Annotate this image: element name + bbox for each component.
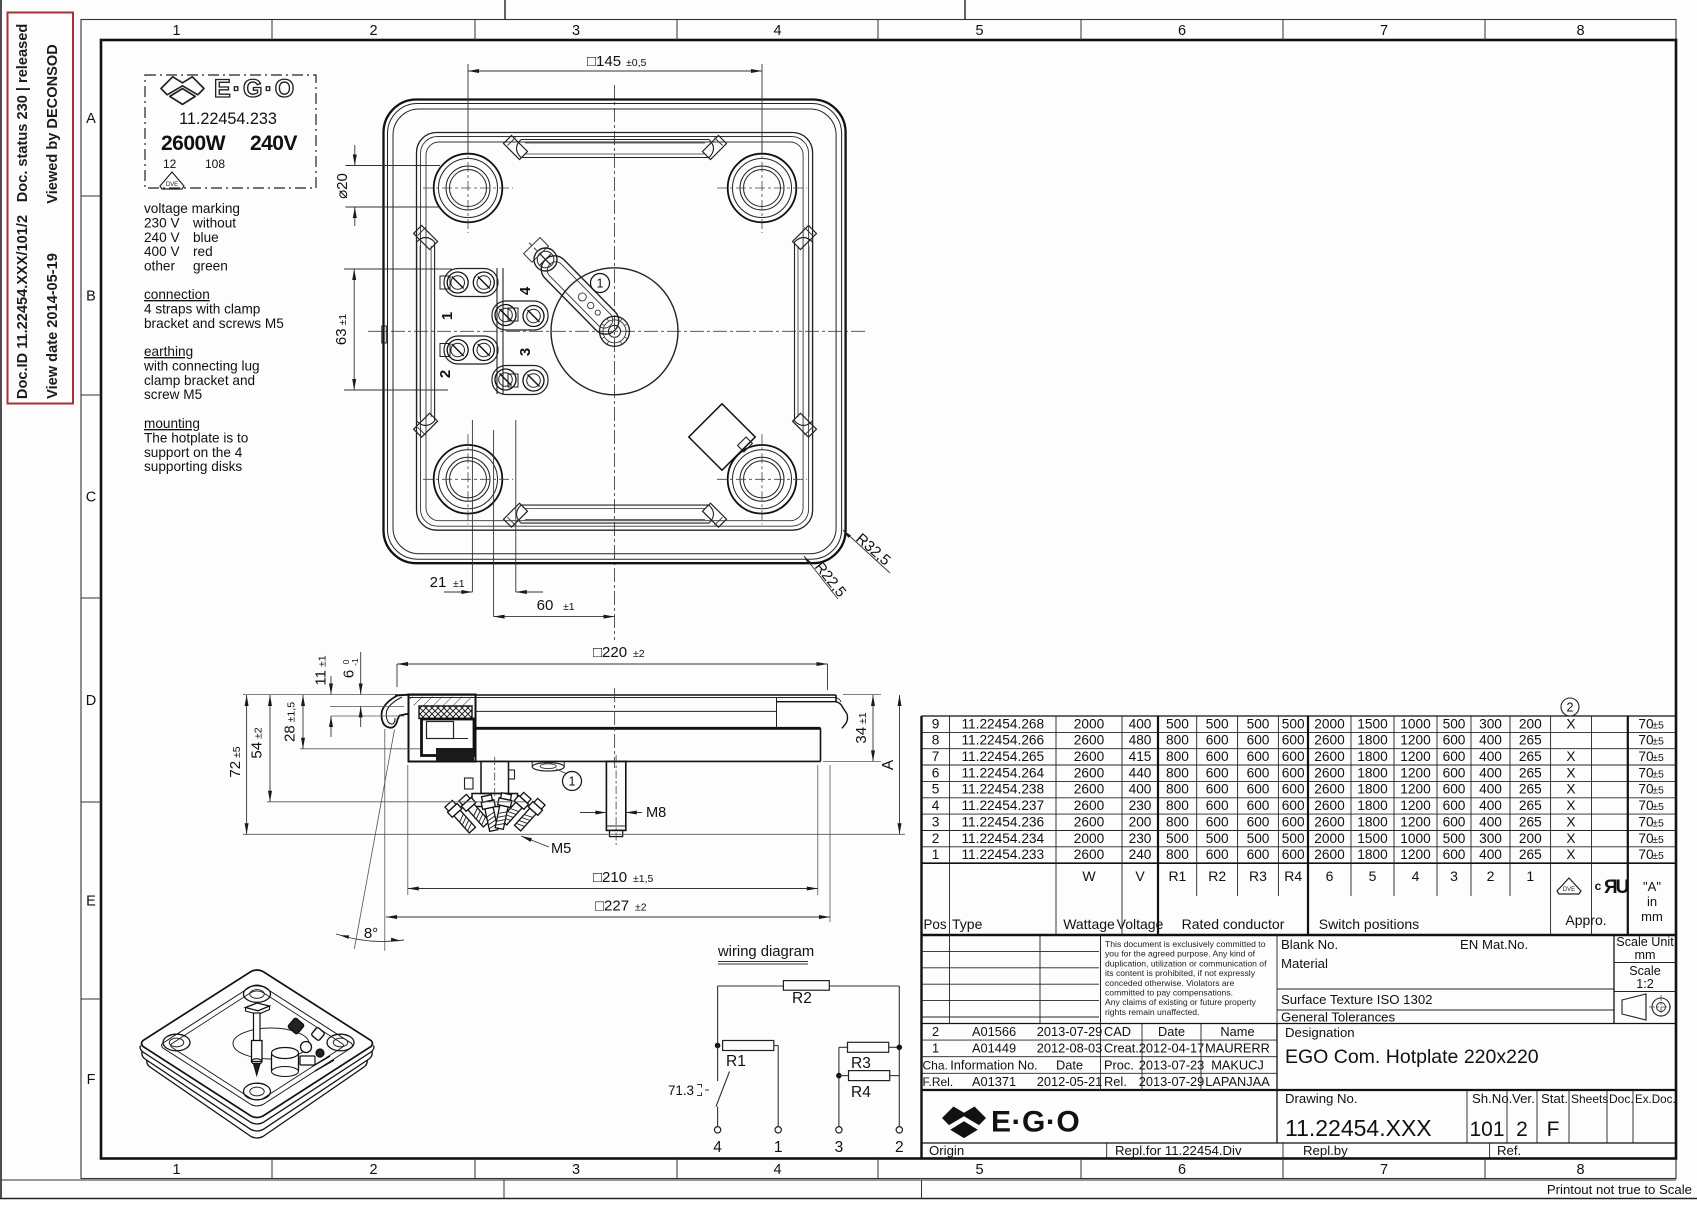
svg-text:600: 600 [1247,782,1270,797]
svg-text:11.22454.238: 11.22454.238 [961,782,1044,797]
svg-text:480: 480 [1129,733,1152,748]
svg-text:200: 200 [1519,716,1542,731]
svg-text:2600: 2600 [1314,798,1345,813]
svg-text:2: 2 [932,1024,939,1039]
svg-text:800: 800 [1166,847,1189,862]
svg-text:230: 230 [1129,798,1152,813]
svg-text:265: 265 [1519,749,1542,764]
svg-text:500: 500 [1166,831,1189,846]
svg-text:2000: 2000 [1314,831,1345,846]
svg-text:"A": "A" [1643,879,1661,894]
svg-text:±1: ±1 [563,601,575,613]
svg-text:□227: □227 [595,898,629,915]
svg-text:2600: 2600 [1314,814,1345,829]
svg-text:clamp bracket and: clamp bracket and [144,373,255,388]
svg-text:600: 600 [1282,814,1305,829]
svg-text:±5: ±5 [1652,736,1664,748]
svg-text:you for the agreed purpose. An: you for the agreed purpose. Any kind of [1105,949,1256,959]
svg-text:R3: R3 [851,1055,871,1072]
svg-text:D: D [86,693,96,709]
svg-text:600: 600 [1282,733,1305,748]
svg-text:General Tolerances: General Tolerances [1281,1010,1396,1025]
svg-text:Doc. status 230 | released: Doc. status 230 | released [15,24,31,203]
svg-text:3: 3 [572,1162,580,1178]
svg-text:rights remain unaffected.: rights remain unaffected. [1105,1007,1199,1017]
svg-text:600: 600 [1282,798,1305,813]
svg-text:21: 21 [430,574,447,591]
svg-text:2600: 2600 [1074,782,1105,797]
svg-text:1200: 1200 [1400,749,1431,764]
svg-text:600: 600 [1282,847,1305,862]
svg-text:5: 5 [932,782,940,797]
svg-text:Sheets: Sheets [1571,1092,1608,1106]
svg-text:600: 600 [1282,782,1305,797]
svg-text:1: 1 [172,23,180,39]
svg-text:6: 6 [1178,1162,1186,1178]
svg-text:4: 4 [773,1162,781,1178]
svg-text:Name: Name [1220,1024,1254,1039]
svg-text:1800: 1800 [1357,765,1388,780]
svg-text:1500: 1500 [1357,831,1388,846]
svg-text:c: c [1595,879,1602,893]
svg-text:600: 600 [1443,847,1466,862]
svg-text:5: 5 [975,1162,983,1178]
svg-text:1: 1 [1526,868,1534,884]
svg-text:800: 800 [1166,749,1189,764]
svg-text:11.22454.264: 11.22454.264 [961,765,1044,780]
svg-text:1: 1 [439,312,456,320]
svg-text:2600: 2600 [1314,847,1345,862]
svg-text:4: 4 [713,1139,722,1156]
svg-text:other: other [144,259,175,274]
svg-text:11.22454.237: 11.22454.237 [961,798,1044,813]
svg-text:600: 600 [1282,765,1305,780]
svg-text:8: 8 [1576,23,1584,39]
svg-text:265: 265 [1519,798,1542,813]
svg-text:supporting disks: supporting disks [144,459,242,474]
svg-text:2013-07-29: 2013-07-29 [1037,1024,1102,1039]
svg-text:600: 600 [1206,749,1229,764]
svg-text:2600: 2600 [1314,733,1345,748]
svg-text:1: 1 [774,1139,783,1156]
svg-text:Sh.No.: Sh.No. [1472,1091,1512,1106]
svg-text:2: 2 [1516,1118,1528,1141]
svg-text:LAPANJAA: LAPANJAA [1205,1074,1270,1089]
svg-text:duplication, utilization or co: duplication, utilization or communicatio… [1105,958,1267,968]
svg-text:4: 4 [932,798,940,813]
svg-text:240V: 240V [250,132,298,155]
svg-text:500: 500 [1166,716,1189,731]
svg-text:8°: 8° [364,925,378,942]
svg-text:11.22454.233: 11.22454.233 [179,110,277,128]
svg-text:X: X [1566,765,1575,780]
svg-text:connection: connection [144,287,210,302]
svg-text:240 V: 240 V [144,230,180,245]
svg-text:red: red [193,244,213,259]
svg-text:R4: R4 [851,1084,871,1101]
svg-text:600: 600 [1206,798,1229,813]
svg-text:265: 265 [1519,765,1542,780]
svg-text:A01566: A01566 [972,1024,1016,1039]
svg-text:X: X [1566,749,1575,764]
svg-text:2600: 2600 [1074,749,1105,764]
svg-text:Rated conductor: Rated conductor [1182,916,1285,932]
svg-text:2013-07-23: 2013-07-23 [1139,1057,1204,1072]
svg-text:230: 230 [1129,831,1152,846]
svg-text:blue: blue [193,230,219,245]
svg-text:Rel.: Rel. [1104,1074,1127,1089]
svg-text:265: 265 [1519,782,1542,797]
svg-text:12: 12 [163,157,177,171]
svg-text:265: 265 [1519,814,1542,829]
svg-text:EN Mat.No.: EN Mat.No. [1460,937,1528,952]
svg-text:Proc.: Proc. [1104,1057,1134,1072]
svg-text:6: 6 [1178,23,1186,39]
svg-text:X: X [1566,847,1575,862]
svg-text:wiring diagram: wiring diagram [717,944,814,960]
svg-text:2600: 2600 [1314,782,1345,797]
svg-text:400: 400 [1479,733,1502,748]
svg-text:1: 1 [597,277,604,291]
svg-text:4 straps with clamp: 4 straps with clamp [144,301,260,316]
svg-text:E·G·O: E·G·O [214,75,296,103]
svg-text:6: 6 [1326,868,1334,884]
svg-text:Cha.: Cha. [923,1058,948,1072]
svg-text:600: 600 [1443,749,1466,764]
svg-text:1800: 1800 [1357,733,1388,748]
svg-text:11.22454.268: 11.22454.268 [961,716,1044,731]
svg-text:11.22454.233: 11.22454.233 [961,847,1044,862]
svg-text:B: B [86,289,96,305]
svg-text:E: E [86,894,96,910]
svg-text:Doc.: Doc. [1609,1092,1634,1106]
svg-text:Origin: Origin [929,1143,964,1158]
svg-text:voltage marking: voltage marking [144,201,240,216]
svg-text:Repl.for 11.22454.Div: Repl.for 11.22454.Div [1115,1143,1242,1158]
svg-text:500: 500 [1443,831,1466,846]
svg-text:ЯU: ЯU [1604,877,1629,898]
svg-text:MAKUCJ: MAKUCJ [1211,1057,1264,1072]
svg-text:2600: 2600 [1314,749,1345,764]
svg-text:500: 500 [1282,716,1305,731]
svg-text:Creat.: Creat. [1104,1041,1139,1056]
svg-text:400: 400 [1479,765,1502,780]
svg-text:400: 400 [1479,782,1502,797]
svg-text:R4: R4 [1284,868,1302,884]
svg-text:EGO Com. Hotplate 220x220: EGO Com. Hotplate 220x220 [1285,1046,1539,1068]
svg-text:1800: 1800 [1357,782,1388,797]
svg-text:600: 600 [1443,733,1466,748]
svg-text:Wattage: Wattage [1063,916,1115,932]
svg-text:2012-08-03: 2012-08-03 [1037,1041,1102,1056]
svg-text:1200: 1200 [1400,798,1431,813]
svg-text:F: F [1547,1118,1560,1141]
svg-text:4: 4 [773,23,781,39]
svg-text:265: 265 [1519,847,1542,862]
svg-text:its content is prohibited, if: its content is prohibited, if not expres… [1105,968,1256,978]
svg-text:6: 6 [932,765,940,780]
svg-text:600: 600 [1247,765,1270,780]
svg-text:committed to pay compensations: committed to pay compensations. [1105,988,1233,998]
svg-text:R1: R1 [726,1053,746,1070]
svg-text:101: 101 [1469,1118,1504,1141]
svg-text:3: 3 [572,23,580,39]
svg-text:800: 800 [1166,798,1189,813]
svg-text:X: X [1566,831,1575,846]
svg-text:11.22454.266: 11.22454.266 [961,733,1044,748]
svg-text:Stat.: Stat. [1541,1091,1568,1106]
svg-text:2600: 2600 [1074,814,1105,829]
svg-text:-1: -1 [350,658,360,666]
svg-text:Repl.by: Repl.by [1303,1143,1348,1158]
svg-text:mm: mm [1641,909,1663,924]
svg-text:±5: ±5 [1652,801,1664,813]
svg-text:mm: mm [1635,948,1656,962]
svg-text:□220: □220 [593,644,627,661]
svg-text:Switch positions: Switch positions [1319,916,1419,932]
svg-text:400: 400 [1479,814,1502,829]
svg-text:600: 600 [1247,733,1270,748]
svg-text:500: 500 [1443,716,1466,731]
svg-text:3: 3 [932,814,940,829]
svg-text:440: 440 [1129,765,1152,780]
svg-text:C: C [86,490,96,506]
svg-text:400: 400 [1479,847,1502,862]
svg-text:2: 2 [369,1162,377,1178]
svg-text:600: 600 [1206,847,1229,862]
svg-text:Pos: Pos [924,917,947,932]
svg-text:300: 300 [1479,831,1502,846]
svg-text:1800: 1800 [1357,814,1388,829]
svg-text:7: 7 [1380,23,1388,39]
svg-text:R1: R1 [1168,868,1186,884]
svg-text:R2: R2 [1208,868,1226,884]
svg-text:8: 8 [932,733,940,748]
svg-text:5: 5 [975,23,983,39]
svg-text:800: 800 [1166,782,1189,797]
svg-text:Scale: Scale [1629,964,1661,978]
svg-text:±5: ±5 [1652,768,1664,780]
svg-text:2600: 2600 [1074,798,1105,813]
svg-text:2600: 2600 [1314,765,1345,780]
svg-text:600: 600 [1206,733,1229,748]
svg-text:V: V [1135,868,1145,884]
svg-text:±5: ±5 [1652,850,1664,862]
svg-text:A: A [880,759,897,770]
svg-text:2: 2 [895,1139,904,1156]
svg-text:3: 3 [517,348,534,356]
svg-text:8: 8 [1576,1162,1584,1178]
svg-text:without: without [192,215,236,230]
svg-text:230 V: 230 V [144,215,180,230]
svg-text:500: 500 [1282,831,1305,846]
svg-text:Appro.: Appro. [1565,912,1606,928]
svg-text:⌀20: ⌀20 [334,173,351,199]
svg-text:CAD: CAD [1104,1024,1131,1039]
svg-text:600: 600 [1443,814,1466,829]
svg-text:R3: R3 [1249,868,1267,884]
svg-text:±1,5: ±1,5 [633,873,654,885]
svg-text:71.3: 71.3 [668,1083,694,1098]
svg-text:1800: 1800 [1357,749,1388,764]
svg-text:□145: □145 [587,53,621,70]
svg-text:Any claims of existing or futu: Any claims of existing or future propert… [1105,997,1257,1007]
svg-text:2600W: 2600W [161,132,226,155]
svg-text:Information No.: Information No. [950,1057,1038,1072]
svg-text:1800: 1800 [1357,847,1388,862]
svg-text:600: 600 [1206,765,1229,780]
svg-text:11.22454.236: 11.22454.236 [961,814,1044,829]
svg-text:Material: Material [1281,956,1328,971]
svg-text:Voltage: Voltage [1117,916,1164,932]
svg-text:3: 3 [835,1139,844,1156]
svg-text:mounting: mounting [144,416,200,431]
svg-text:400: 400 [1129,716,1152,731]
svg-text:Type: Type [952,916,983,932]
svg-text:2: 2 [1567,701,1574,715]
svg-text:400: 400 [1129,782,1152,797]
svg-text:200: 200 [1519,831,1542,846]
svg-text:600: 600 [1247,814,1270,829]
svg-text:1: 1 [172,1162,180,1178]
svg-text:600: 600 [1282,749,1305,764]
svg-text:2: 2 [369,23,377,39]
svg-text:1: 1 [932,1041,939,1056]
svg-text:Doc.ID 11.22454.XXX/101/2: Doc.ID 11.22454.XXX/101/2 [15,215,31,399]
svg-text:±5: ±5 [1652,834,1664,846]
svg-text:X: X [1566,798,1575,813]
svg-text:60: 60 [537,597,554,614]
svg-text:1200: 1200 [1400,814,1431,829]
svg-text:W: W [1082,868,1096,884]
svg-text:earthing: earthing [144,344,193,359]
svg-text:400 V: 400 V [144,244,180,259]
svg-text:500: 500 [1247,831,1270,846]
svg-text:±0,5: ±0,5 [626,57,647,69]
svg-text:±5: ±5 [1652,817,1664,829]
svg-text:A: A [86,111,96,127]
svg-text:600: 600 [1247,847,1270,862]
svg-text:Designation: Designation [1285,1025,1355,1040]
svg-text:265: 265 [1519,733,1542,748]
svg-text:1: 1 [569,775,576,789]
svg-text:3: 3 [1450,868,1458,884]
svg-text:1800: 1800 [1357,798,1388,813]
svg-text:Date: Date [1056,1057,1083,1072]
svg-text:±2: ±2 [635,902,647,914]
svg-text:Drawing No.: Drawing No. [1285,1091,1358,1106]
svg-text:600: 600 [1443,765,1466,780]
svg-text:4: 4 [517,286,534,295]
svg-text:600: 600 [1443,798,1466,813]
svg-text:A01449: A01449 [972,1041,1016,1056]
svg-text:11.22454.265: 11.22454.265 [961,749,1044,764]
svg-text:screw M5: screw M5 [144,387,202,402]
svg-text:2012-05-21: 2012-05-21 [1037,1074,1102,1089]
svg-text:X: X [1566,782,1575,797]
svg-text:This document is exclusively c: This document is exclusively committed t… [1105,939,1266,949]
svg-text:Surface Texture ISO 1302: Surface Texture ISO 1302 [1281,992,1433,1007]
svg-text:600: 600 [1206,782,1229,797]
svg-text:1200: 1200 [1400,782,1431,797]
svg-text:F: F [87,1072,96,1088]
svg-text:300: 300 [1479,716,1502,731]
svg-text:Ex.Doc.: Ex.Doc. [1635,1093,1676,1106]
svg-text:M8: M8 [646,805,666,821]
svg-text:1000: 1000 [1400,716,1431,731]
svg-text:±5: ±5 [1652,785,1664,797]
svg-text:800: 800 [1166,733,1189,748]
svg-text:9: 9 [932,716,940,731]
svg-text:11.22454.234: 11.22454.234 [961,831,1044,846]
svg-text:600: 600 [1247,749,1270,764]
svg-text:1200: 1200 [1400,765,1431,780]
svg-text:Scale Unit: Scale Unit [1616,935,1674,949]
svg-text:□210: □210 [593,869,627,886]
svg-text:2: 2 [437,370,454,378]
svg-text:R2: R2 [792,990,812,1007]
svg-text:415: 415 [1129,749,1152,764]
svg-text:500: 500 [1247,716,1270,731]
svg-text:Ver.: Ver. [1512,1091,1535,1106]
svg-text:±1: ±1 [453,578,465,590]
svg-text:bracket and screws M5: bracket and screws M5 [144,316,284,331]
svg-text:2000: 2000 [1314,716,1345,731]
svg-text:600: 600 [1443,782,1466,797]
svg-text:Date: Date [1158,1024,1185,1039]
svg-text:400: 400 [1479,798,1502,813]
svg-text:600: 600 [1206,814,1229,829]
svg-text:Ref.: Ref. [1497,1143,1521,1158]
svg-text:conceded otherwise. Violators: conceded otherwise. Violators are [1105,978,1235,988]
svg-text:Viewed by DECONSOD: Viewed by DECONSOD [45,44,61,204]
svg-text:F.Rel.: F.Rel. [923,1075,954,1089]
svg-text:4: 4 [1412,868,1420,884]
svg-text:200: 200 [1129,814,1152,829]
svg-text:7: 7 [932,749,940,764]
svg-text:11.22454.XXX: 11.22454.XXX [1285,1115,1432,1141]
svg-text:800: 800 [1166,765,1189,780]
svg-text:X: X [1566,814,1575,829]
svg-text:500: 500 [1206,716,1229,731]
svg-text:Blank No.: Blank No. [1281,937,1338,952]
svg-text:7: 7 [1380,1162,1388,1178]
svg-text:6: 6 [341,670,358,678]
svg-text:1:2: 1:2 [1636,977,1654,991]
svg-text:600: 600 [1247,798,1270,813]
svg-text:2013-07-29: 2013-07-29 [1139,1074,1204,1089]
svg-text:±2: ±2 [633,648,645,660]
svg-text:green: green [193,259,228,274]
svg-text:2: 2 [932,831,940,846]
svg-text:800: 800 [1166,814,1189,829]
svg-text:2: 2 [1487,868,1495,884]
svg-text:±5: ±5 [1652,719,1664,731]
svg-text:support on the 4: support on the 4 [144,445,243,460]
svg-text:1: 1 [932,847,940,862]
svg-text:X: X [1566,716,1575,731]
svg-text:with connecting lug: with connecting lug [143,358,260,373]
svg-text:The hotplate is to: The hotplate is to [144,430,248,445]
svg-text:5: 5 [1369,868,1377,884]
svg-text:2012-04-17: 2012-04-17 [1139,1041,1204,1056]
svg-text:1200: 1200 [1400,847,1431,862]
svg-text:2600: 2600 [1074,847,1105,862]
svg-text:240: 240 [1129,847,1152,862]
svg-text:1000: 1000 [1400,831,1431,846]
svg-text:108: 108 [205,157,225,171]
svg-text:2600: 2600 [1074,765,1105,780]
